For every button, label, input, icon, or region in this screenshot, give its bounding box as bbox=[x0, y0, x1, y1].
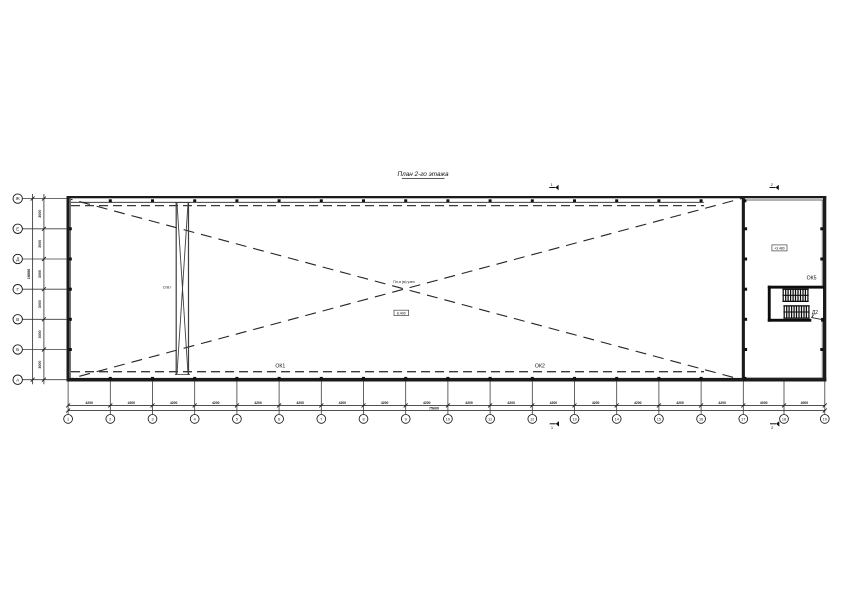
svg-text:18000: 18000 bbox=[27, 269, 31, 280]
svg-text:3000: 3000 bbox=[38, 361, 42, 369]
svg-text:4200: 4200 bbox=[634, 401, 642, 405]
svg-text:3: 3 bbox=[151, 417, 153, 421]
svg-text:9: 9 bbox=[405, 417, 407, 421]
svg-text:4200: 4200 bbox=[128, 401, 136, 405]
svg-text:1: 1 bbox=[67, 417, 69, 421]
svg-text:Д2: Д2 bbox=[812, 310, 818, 316]
svg-text:4200: 4200 bbox=[381, 401, 389, 405]
svg-text:16: 16 bbox=[699, 417, 703, 421]
svg-text:4000: 4000 bbox=[801, 401, 809, 405]
svg-text:Сп8 г: Сп8 г bbox=[163, 285, 173, 289]
svg-text:ОК1: ОК1 bbox=[275, 363, 285, 369]
svg-text:ОК5: ОК5 bbox=[807, 276, 817, 282]
svg-text:5: 5 bbox=[236, 417, 238, 421]
svg-text:3000: 3000 bbox=[38, 330, 42, 338]
svg-text:4200: 4200 bbox=[254, 401, 262, 405]
svg-text:10: 10 bbox=[446, 417, 450, 421]
svg-text:7: 7 bbox=[320, 417, 322, 421]
svg-text:3000: 3000 bbox=[38, 240, 42, 248]
svg-text:4200: 4200 bbox=[507, 401, 515, 405]
svg-text:4200: 4200 bbox=[676, 401, 684, 405]
svg-text:План 2-го этажа: План 2-го этажа bbox=[397, 171, 449, 178]
svg-text:В: В bbox=[16, 317, 19, 322]
svg-text:Ж: Ж bbox=[16, 196, 20, 201]
svg-text:4: 4 bbox=[194, 417, 196, 421]
svg-text:75600: 75600 bbox=[429, 407, 439, 411]
svg-text:11: 11 bbox=[488, 417, 492, 421]
svg-text:Е: Е bbox=[16, 226, 19, 231]
svg-text:4200: 4200 bbox=[423, 401, 431, 405]
svg-text:4200: 4200 bbox=[718, 401, 726, 405]
svg-text:3000: 3000 bbox=[38, 210, 42, 218]
svg-text:4200: 4200 bbox=[296, 401, 304, 405]
svg-text:8.400: 8.400 bbox=[397, 311, 406, 315]
svg-text:3000: 3000 bbox=[38, 300, 42, 308]
svg-text:4200: 4200 bbox=[465, 401, 473, 405]
svg-text:3000: 3000 bbox=[38, 270, 42, 278]
svg-text:Б: Б bbox=[16, 347, 19, 352]
svg-text:14: 14 bbox=[615, 417, 619, 421]
svg-text:Пл-я (м) узел: Пл-я (м) узел bbox=[393, 280, 415, 284]
svg-text:13: 13 bbox=[572, 417, 576, 421]
svg-text:8: 8 bbox=[362, 417, 364, 421]
svg-text:4200: 4200 bbox=[170, 401, 178, 405]
svg-text:4200: 4200 bbox=[339, 401, 347, 405]
svg-text:4200: 4200 bbox=[592, 401, 600, 405]
svg-text:2: 2 bbox=[109, 417, 111, 421]
svg-text:ОК2: ОК2 bbox=[535, 363, 545, 369]
svg-text:Д: Д bbox=[16, 257, 19, 262]
svg-text:4200: 4200 bbox=[212, 401, 220, 405]
svg-text:+3.480: +3.480 bbox=[774, 247, 785, 251]
svg-text:17: 17 bbox=[741, 417, 745, 421]
svg-text:12: 12 bbox=[530, 417, 534, 421]
svg-text:18: 18 bbox=[782, 417, 786, 421]
svg-text:6: 6 bbox=[278, 417, 280, 421]
svg-text:4000: 4000 bbox=[760, 401, 768, 405]
svg-text:4200: 4200 bbox=[85, 401, 93, 405]
svg-text:4200: 4200 bbox=[550, 401, 558, 405]
svg-text:15: 15 bbox=[657, 417, 661, 421]
svg-text:19: 19 bbox=[823, 417, 827, 421]
svg-text:А: А bbox=[16, 377, 19, 382]
